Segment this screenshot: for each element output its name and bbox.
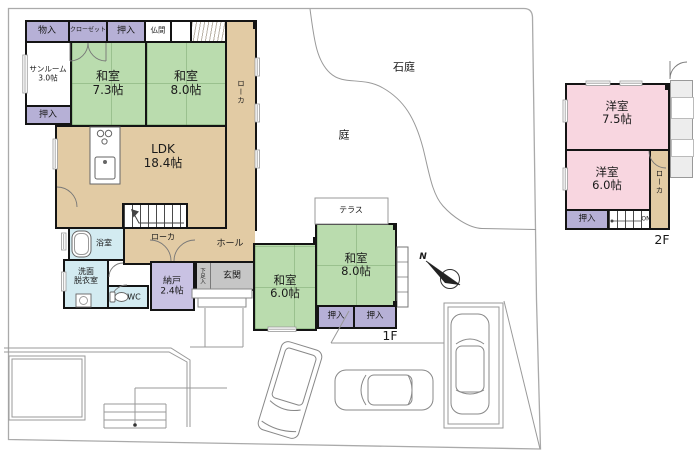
alcove-blank bbox=[170, 20, 192, 43]
label-1f: 1F bbox=[382, 329, 397, 343]
car-van bbox=[256, 340, 323, 440]
tokonoma-alcove bbox=[190, 20, 227, 43]
label-genkan: 玄関 bbox=[223, 271, 241, 281]
label-washitsu-7-3: 和室7.3帖 bbox=[92, 70, 123, 98]
label-oshiire-2f: 押入 bbox=[578, 215, 595, 225]
label-garden: 庭 bbox=[339, 130, 350, 143]
label-rock-garden: 石庭 bbox=[393, 62, 415, 75]
label-compass-n: N bbox=[419, 252, 427, 262]
label-2f: 2F bbox=[654, 233, 669, 247]
balcony-window bbox=[671, 97, 694, 119]
label-roka-right: ローカ bbox=[236, 79, 247, 105]
label-butsuma: 仏間 bbox=[151, 27, 166, 36]
entrance-porch-steps bbox=[192, 289, 252, 307]
balcony-strip-2f bbox=[670, 80, 693, 178]
label-closet: クローゼット bbox=[70, 28, 106, 35]
label-terrace: テラス bbox=[339, 205, 363, 214]
label-bath: 浴室 bbox=[96, 238, 112, 247]
label-washitsu-6-0: 和室6.0帖 bbox=[270, 274, 300, 300]
label-ldk: LDK18.4帖 bbox=[144, 143, 183, 171]
label-oshiire-top: 押入 bbox=[117, 26, 135, 36]
label-oshiire-left: 押入 bbox=[39, 110, 57, 120]
label-yoshitsu-6-0: 洋室6.0帖 bbox=[592, 166, 622, 192]
label-stairs-on: ON bbox=[641, 217, 650, 224]
label-monoiri: 物入 bbox=[38, 26, 56, 36]
label-oshiire-b1: 押入 bbox=[327, 312, 344, 322]
car-sedan-horizontal bbox=[335, 370, 433, 410]
label-senmen: 洗面脱衣室 bbox=[74, 267, 98, 285]
corridor-right bbox=[225, 20, 257, 231]
label-washitsu-8-0-btm: 和室8.0帖 bbox=[341, 252, 371, 278]
garden-divider-curve bbox=[310, 9, 536, 230]
balcony-window bbox=[671, 139, 694, 157]
floor-plan: 物入 クローゼット 押入 仏間 サンルーム3.0帖 押入 和室7.3帖 和室8.… bbox=[0, 0, 699, 456]
label-oshiire-b2: 押入 bbox=[366, 312, 383, 322]
label-roka-mid: ローカ bbox=[151, 232, 175, 241]
stairs-1f bbox=[122, 203, 188, 229]
label-roka-2f: ローカ bbox=[654, 169, 665, 195]
label-nando: 納戸2.4帖 bbox=[160, 277, 183, 298]
label-sunroom: サンルーム3.0帖 bbox=[29, 65, 66, 82]
label-washitsu-8-0-top: 和室8.0帖 bbox=[170, 70, 201, 98]
label-yoshitsu-7-5: 洋室7.5帖 bbox=[602, 100, 632, 126]
compass bbox=[426, 261, 460, 289]
label-hall: ホール bbox=[216, 239, 243, 249]
engawa-strip bbox=[397, 247, 408, 307]
car-sedan-vertical bbox=[451, 314, 489, 414]
label-gesokuiri: 下足入 bbox=[198, 268, 206, 285]
label-wc: WC bbox=[127, 292, 141, 301]
